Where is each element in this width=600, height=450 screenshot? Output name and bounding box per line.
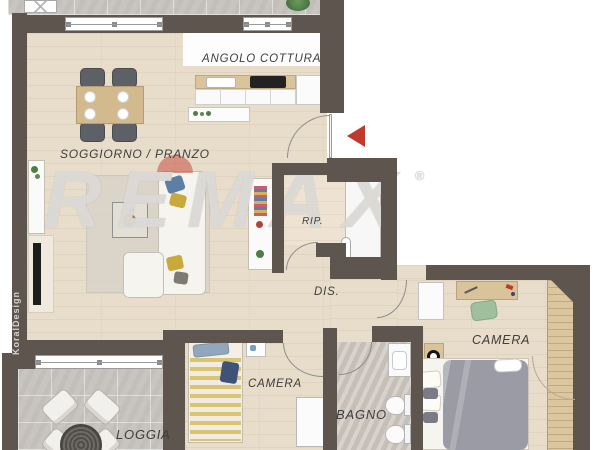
wall-right-main xyxy=(573,280,590,450)
wardrobe xyxy=(296,397,324,447)
bidet-bowl xyxy=(385,425,405,444)
plate xyxy=(84,91,96,103)
dining-chair xyxy=(112,122,137,142)
loggia-window xyxy=(35,355,163,369)
toilet-tank xyxy=(404,394,411,416)
bed-cushion-gray xyxy=(423,412,438,423)
bedroom-door-threshold xyxy=(397,265,426,280)
wall-loggia-top xyxy=(18,340,163,355)
sink-basin xyxy=(392,351,407,370)
bedroom-cabinet xyxy=(418,282,444,320)
island-plant xyxy=(200,112,204,116)
window xyxy=(243,17,292,31)
label-loggia: LOGGIA xyxy=(116,428,171,441)
sideboard-plant xyxy=(31,166,38,173)
wall-bathroom-right xyxy=(411,328,423,450)
balcony-table xyxy=(24,0,57,13)
tv-screen xyxy=(33,243,41,305)
duvet xyxy=(443,360,528,450)
label-bedroom-second: CAMERA xyxy=(248,379,302,391)
entrance-arrow xyxy=(347,125,365,147)
plate xyxy=(117,108,129,120)
desk-item-dot xyxy=(511,292,515,296)
label-hall: DIS. xyxy=(314,287,340,299)
wall-storage-left xyxy=(272,163,284,273)
label-bath: BAGNO xyxy=(336,408,387,421)
label-bedroom-master: CAMERA xyxy=(472,334,530,347)
floor-plan: REMAX® ANGOLO COTTURA SOGGIORNO / PRANZO… xyxy=(0,0,600,450)
dining-chair xyxy=(112,68,137,88)
island-plant xyxy=(193,111,198,116)
wall-right-top xyxy=(320,0,344,113)
bed-cushion-gray xyxy=(423,388,438,399)
wall-bedroom-bath-divider xyxy=(323,328,337,450)
label-storage: RIP. xyxy=(302,217,323,227)
island-plant xyxy=(206,111,211,116)
bidet-tap xyxy=(404,424,411,444)
designer-credit: KoralDesign xyxy=(11,293,27,355)
bed-towel xyxy=(494,358,523,372)
plate xyxy=(84,108,96,120)
wall-storage-door-stub xyxy=(316,243,346,257)
dining-chair xyxy=(80,68,105,88)
dining-chair xyxy=(80,122,105,142)
wall-left-loggia xyxy=(2,353,18,450)
nightstand xyxy=(246,342,266,357)
wall-storage-top xyxy=(272,163,345,175)
toilet-bowl xyxy=(385,396,405,415)
sofa-chaise xyxy=(123,252,164,298)
kitchen-sink xyxy=(206,77,236,88)
wall-loggia-window-stub xyxy=(18,355,35,369)
kitchen-cabinet-front xyxy=(195,89,296,105)
bathroom-door-threshold xyxy=(337,330,372,342)
plate xyxy=(117,91,129,103)
wall-bedroom-top-b xyxy=(426,265,590,280)
desk-chair xyxy=(470,299,498,321)
label-living: SOGGIORNO / PRANZO xyxy=(60,148,210,160)
kitchen-stove xyxy=(250,76,286,88)
nightstand-decor xyxy=(250,345,256,351)
sofa-cushion-gray xyxy=(173,271,189,285)
bed-cushion-navy xyxy=(219,361,239,384)
bookcase-plant xyxy=(256,250,264,258)
sideboard-plant xyxy=(35,174,40,179)
registered-mark: ® xyxy=(415,128,425,224)
wall-bedroom-top-a xyxy=(383,265,397,280)
label-kitchen: ANGOLO COTTURA xyxy=(202,54,321,66)
window xyxy=(65,17,163,31)
